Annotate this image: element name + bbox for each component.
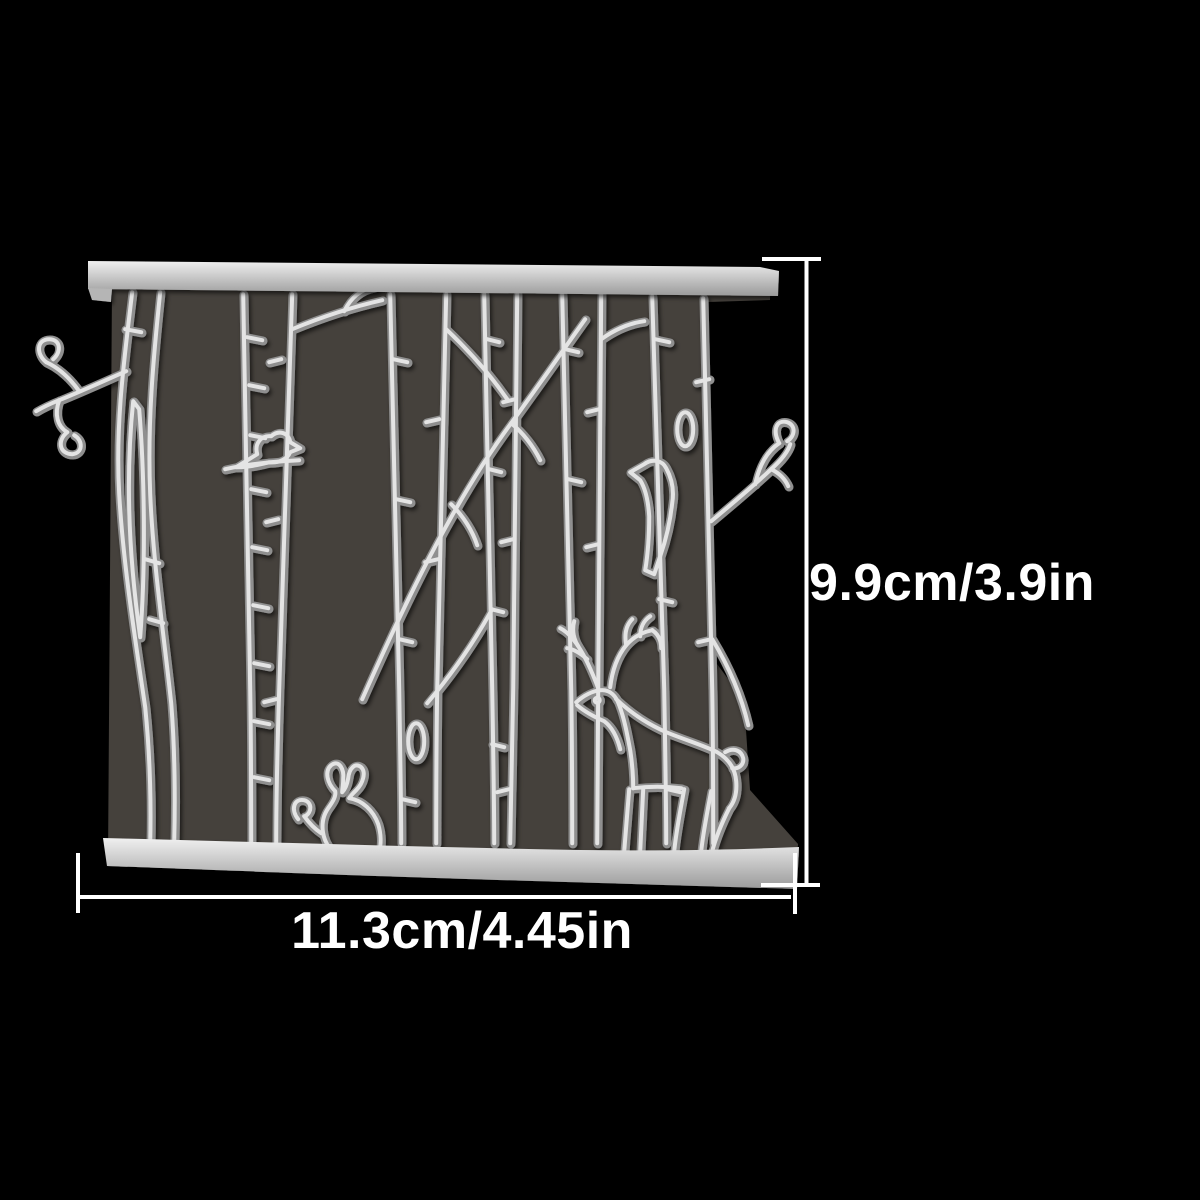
width-dimension-right-cap [793, 853, 797, 914]
height-dimension-line [805, 258, 809, 886]
height-dimension-top-cap [762, 257, 821, 261]
width-dimension-left-cap [76, 853, 80, 913]
width-dimension-label: 11.3cm/4.45in [291, 905, 633, 957]
top-rail-lip [88, 288, 112, 302]
height-dimension-label: 9.9cm/3.9in [809, 557, 1095, 609]
die-backing-sheet [108, 286, 798, 872]
height-dimension-bottom-cap [761, 883, 820, 887]
product-image: 9.9cm/3.9in 11.3cm/4.45in [0, 0, 1200, 1200]
width-dimension-line [78, 895, 791, 899]
